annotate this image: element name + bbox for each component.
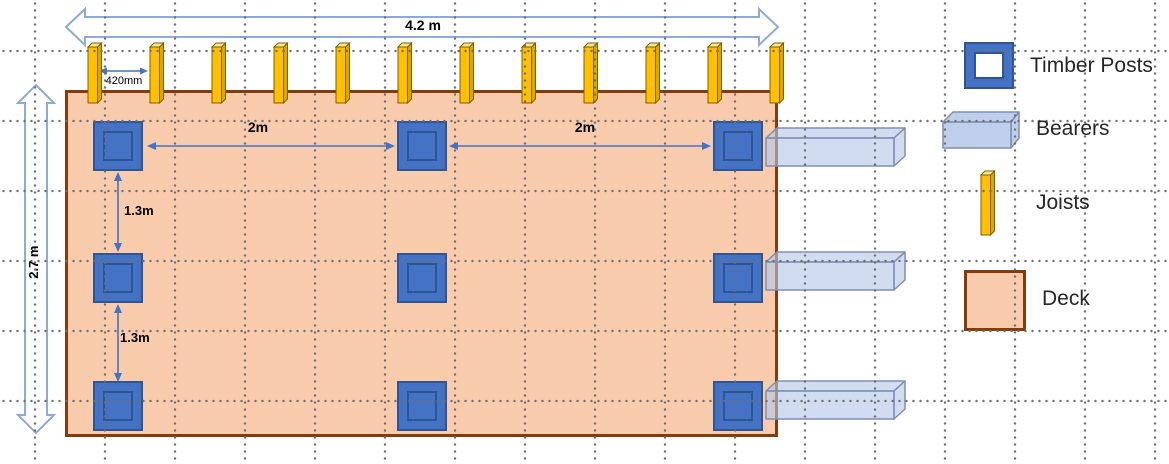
- joist: [397, 42, 413, 104]
- timber-post: [93, 253, 143, 303]
- post-gap-right-label: 2m: [565, 120, 605, 135]
- timber-post: [397, 381, 447, 431]
- legend-swatch-deck: [964, 270, 1026, 331]
- bearer: [765, 250, 907, 291]
- deck-plan-diagram: 4.2 m 2.7 m 420mm 2m 2m 1.3m 1.3m: [0, 0, 1169, 464]
- deck-depth-label: 2.7 m: [27, 238, 41, 286]
- legend-label-joists: Joists: [1036, 191, 1090, 215]
- post-gap-left-label: 2m: [238, 120, 278, 135]
- legend-swatch-bearer: [942, 110, 1020, 150]
- joist-spacing-label: 420mm: [99, 75, 149, 87]
- timber-post-inner: [407, 263, 437, 293]
- joist: [583, 42, 599, 104]
- timber-post-inner: [723, 131, 753, 161]
- joist: [149, 42, 165, 104]
- timber-post-inner: [407, 131, 437, 161]
- post-gap-upper-arrow: [111, 171, 125, 253]
- timber-post-inner: [103, 131, 133, 161]
- legend-label-timber-posts: Timber Posts: [1030, 54, 1153, 78]
- joist: [769, 42, 785, 104]
- timber-post: [397, 253, 447, 303]
- timber-post: [397, 121, 447, 171]
- timber-post-inner: [407, 391, 437, 421]
- post-gap-lower-label: 1.3m: [120, 331, 162, 345]
- joist: [459, 42, 475, 104]
- post-gap-right-arrow: [448, 139, 712, 153]
- timber-post: [93, 381, 143, 431]
- joist: [211, 42, 227, 104]
- timber-post: [713, 253, 763, 303]
- legend-label-bearers: Bearers: [1036, 117, 1110, 141]
- legend-post-inner: [974, 52, 1004, 79]
- post-gap-left-arrow: [146, 139, 396, 153]
- joist: [87, 42, 103, 104]
- joist: [273, 42, 289, 104]
- legend-swatch-timber-post: [964, 42, 1014, 89]
- deck-width-label: 4.2 m: [393, 18, 453, 33]
- joist: [707, 42, 723, 104]
- timber-post-inner: [723, 263, 753, 293]
- post-gap-upper-label: 1.3m: [124, 204, 166, 218]
- timber-post-inner: [723, 391, 753, 421]
- joist: [645, 42, 661, 104]
- timber-post: [713, 381, 763, 431]
- bearer: [765, 126, 907, 167]
- joist: [521, 42, 537, 104]
- legend-swatch-joist: [980, 170, 996, 236]
- timber-post-inner: [103, 391, 133, 421]
- bearer: [765, 379, 907, 420]
- joist: [335, 42, 351, 104]
- timber-post: [93, 121, 143, 171]
- legend-label-deck: Deck: [1042, 287, 1090, 311]
- timber-post: [713, 121, 763, 171]
- timber-post-inner: [103, 263, 133, 293]
